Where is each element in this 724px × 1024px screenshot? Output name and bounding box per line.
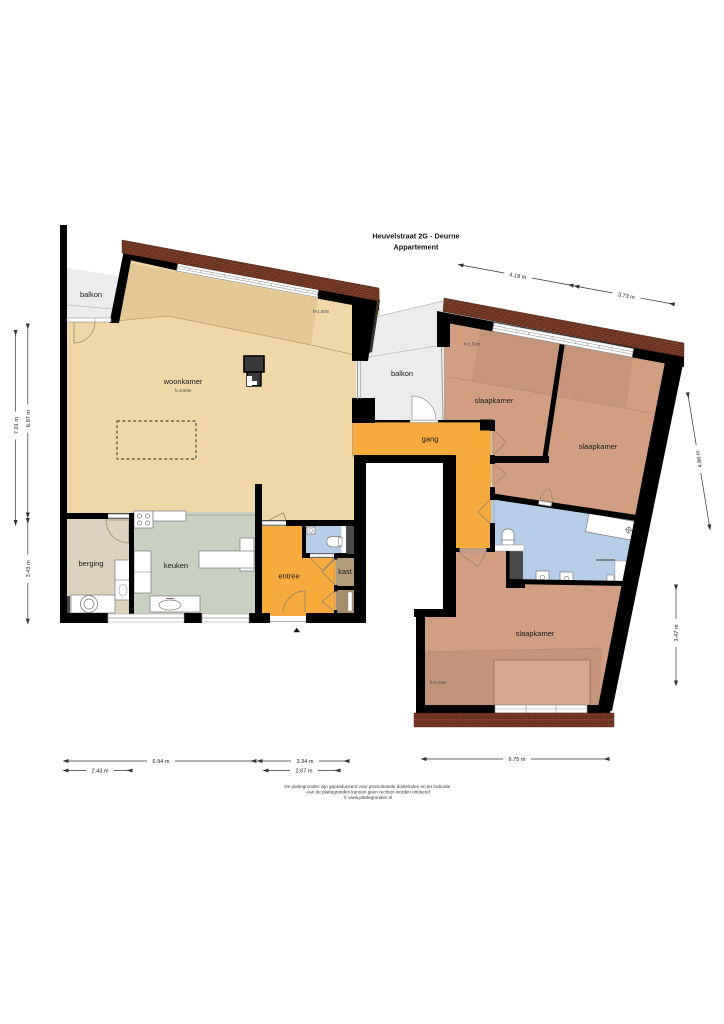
svg-text:slaapkamer: slaapkamer xyxy=(475,396,514,405)
svg-text:2.43 m: 2.43 m xyxy=(91,769,108,775)
svg-text:De plattegronden zijn geproduc: De plattegronden zijn geproduceerd voor … xyxy=(284,784,451,789)
svg-text:gang: gang xyxy=(422,435,439,444)
svg-text:7.01 m: 7.01 m xyxy=(14,417,20,434)
svg-text:6.94 m: 6.94 m xyxy=(152,759,169,765)
svg-text:2.67 m: 2.67 m xyxy=(295,769,312,775)
svg-text:Heuvelstraat 2G - Deurne: Heuvelstraat 2G - Deurne xyxy=(372,232,459,241)
svg-text:slaapkamer: slaapkamer xyxy=(579,442,618,451)
svg-text:balkon: balkon xyxy=(80,290,102,299)
svg-text:6.97 m: 6.97 m xyxy=(26,410,32,427)
svg-text:3.43 m: 3.43 m xyxy=(26,560,32,577)
svg-text:slaapkamer: slaapkamer xyxy=(516,629,555,638)
svg-text:h<1.50m: h<1.50m xyxy=(464,342,481,347)
svg-text:h=2.69m: h=2.69m xyxy=(175,388,192,393)
svg-text:berging: berging xyxy=(78,559,103,568)
svg-text:h<1.50m: h<1.50m xyxy=(313,309,330,314)
svg-text:woonkamer: woonkamer xyxy=(163,377,203,386)
svg-text:Appartement: Appartement xyxy=(393,243,439,252)
svg-text:6.75 m: 6.75 m xyxy=(508,757,525,763)
svg-text:h<1.50m: h<1.50m xyxy=(430,680,447,685)
svg-text:Aan de plattegronden kunnen ge: Aan de plattegronden kunnen geen rechten… xyxy=(306,790,430,795)
svg-text:3.34 m: 3.34 m xyxy=(296,759,313,765)
svg-text:entree: entree xyxy=(278,572,299,581)
svg-text:3.47 m: 3.47 m xyxy=(674,624,680,641)
svg-text:© www.plattegronden.nl: © www.plattegronden.nl xyxy=(344,794,393,800)
svg-text:kast: kast xyxy=(338,567,353,576)
svg-text:keuken: keuken xyxy=(164,561,188,570)
svg-text:balkon: balkon xyxy=(391,369,413,378)
